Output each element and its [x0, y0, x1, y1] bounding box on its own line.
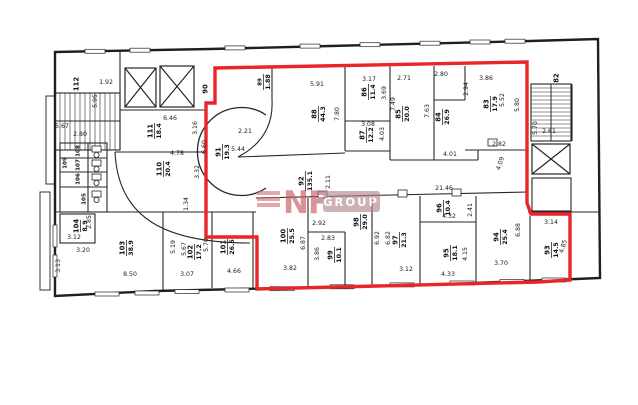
dimension-label: 5.44 [231, 146, 245, 153]
svg-text:96: 96 [436, 203, 444, 213]
svg-text:104: 104 [73, 219, 81, 233]
svg-text:25.5: 25.5 [289, 228, 296, 244]
dimension-label: 2.21 [238, 128, 252, 135]
svg-text:90: 90 [202, 84, 210, 94]
dimension-label: 2.82 [492, 141, 506, 148]
room-label-108: 108 [76, 145, 82, 157]
dimension-label: 2.80 [434, 71, 448, 78]
dimension-label: 6.46 [163, 115, 177, 122]
dimension-label: 2.85 [86, 215, 93, 229]
room-label-86: 8611.4 [361, 84, 378, 100]
svg-text:97: 97 [392, 235, 400, 245]
dimension-label: 2.11 [325, 175, 332, 189]
svg-text:18.4: 18.4 [156, 123, 163, 139]
room-label-109: 109 [63, 157, 69, 169]
dimension-label: 2.80 [73, 131, 87, 138]
dimension-label: 2.71 [397, 75, 411, 82]
svg-text:94: 94 [493, 232, 501, 242]
svg-text:25.4: 25.4 [502, 229, 509, 245]
svg-text:109: 109 [63, 157, 69, 169]
dimension-label: 21.46 [435, 185, 453, 192]
svg-text:20.4: 20.4 [165, 161, 172, 177]
dimension-label: 2.61 [542, 128, 556, 135]
dimension-label: 6.60 [201, 140, 208, 154]
svg-text:44.3: 44.3 [320, 106, 327, 122]
dimension-label: 3.14 [544, 219, 558, 226]
dimension-label: 5.52 [499, 93, 506, 107]
room-label-83: 8317.9 [483, 96, 500, 112]
room-label-84: 8426.9 [435, 109, 452, 125]
room-label-106: 106 [76, 173, 82, 185]
svg-text:1.88: 1.88 [265, 74, 272, 90]
svg-text:17.9: 17.9 [492, 96, 499, 112]
dimension-label: 3.82 [283, 265, 297, 272]
dimension-label: 3.32 [194, 165, 201, 179]
dimension-label: 2.41 [467, 203, 474, 217]
dimension-label: 3.08 [361, 121, 375, 128]
dimension-label: 3.86 [314, 247, 321, 261]
svg-text:112: 112 [73, 77, 81, 91]
dimension-label: 3.17 [362, 76, 376, 83]
dimension-label: 1.92 [99, 79, 113, 86]
svg-text:38.9: 38.9 [128, 240, 135, 256]
dimension-label: 3.70 [494, 260, 508, 267]
svg-text:105: 105 [82, 193, 88, 205]
svg-text:106: 106 [76, 173, 82, 185]
svg-text:91: 91 [215, 147, 223, 157]
dimension-label: 7.63 [424, 104, 431, 118]
dimension-label: 4.09 [495, 156, 506, 171]
dimension-label: 4.66 [227, 268, 241, 275]
dimension-label: 4.32 [442, 213, 456, 220]
svg-text:10.1: 10.1 [336, 247, 343, 263]
svg-text:12.2: 12.2 [368, 127, 375, 143]
watermark-group: GROUP [323, 195, 379, 209]
svg-text:26.5: 26.5 [229, 239, 236, 255]
dimension-label: 3.20 [76, 247, 90, 254]
dimension-label: 5.70 [203, 238, 210, 252]
dimension-label: 5.19 [170, 240, 177, 254]
svg-text:26.9: 26.9 [444, 109, 451, 125]
dimension-label: 5.70 [532, 121, 539, 135]
dimension-label: 2.94 [463, 82, 470, 96]
svg-text:107: 107 [76, 159, 82, 171]
svg-text:20.0: 20.0 [404, 106, 411, 122]
room-label-90: 90 [202, 84, 210, 94]
svg-text:110: 110 [156, 162, 164, 176]
room-label-82: 82 [553, 73, 561, 83]
room-label-93: 9314.5 [544, 242, 561, 258]
room-label-112: 112 [73, 77, 81, 91]
floor-plan-svg: NF GROUP 11211118.411020.410910810710610… [0, 0, 638, 405]
dimension-label: 3.12 [67, 234, 81, 241]
svg-text:88: 88 [311, 109, 319, 119]
svg-text:84: 84 [435, 112, 443, 122]
svg-text:82: 82 [553, 73, 561, 83]
dimension-label: 6.82 [385, 231, 392, 245]
room-label-89: 891.88 [258, 74, 273, 90]
dimension-label: 4.33 [441, 271, 455, 278]
room-label-88: 8844.3 [311, 106, 328, 122]
room-label-111: 11118.4 [147, 123, 164, 139]
watermark-stripes-icon [257, 191, 280, 207]
svg-text:93: 93 [544, 245, 552, 255]
svg-text:11.4: 11.4 [370, 84, 377, 100]
svg-text:89: 89 [258, 78, 264, 86]
room-label-102: 10217.2 [187, 244, 204, 260]
floor-plan-page: NF GROUP 11211118.411020.410910810710610… [0, 0, 638, 405]
dimension-label: 6.92 [374, 231, 381, 245]
room-label-94: 9425.4 [493, 229, 510, 245]
room-label-101: 10126.5 [220, 239, 237, 255]
svg-text:111: 111 [147, 124, 155, 138]
svg-text:135.1: 135.1 [307, 171, 314, 191]
dimension-label: 4.01 [443, 151, 457, 158]
dimension-label: 3.69 [381, 86, 388, 100]
plan-labels: 11211118.411020.41091081071061051048.910… [55, 71, 569, 278]
dimension-label: 2.92 [312, 220, 326, 227]
dimension-label: 7.49 [390, 97, 397, 111]
dimension-label: 3.07 [180, 271, 194, 278]
svg-text:17.2: 17.2 [196, 244, 203, 260]
dimension-label: 6.88 [515, 223, 522, 237]
dimension-label: 4.85 [558, 239, 569, 254]
room-label-97: 9721.3 [392, 232, 409, 248]
room-label-110: 11020.4 [156, 161, 173, 177]
svg-text:92: 92 [298, 176, 306, 186]
room-label-91: 9119.3 [215, 144, 232, 160]
dimension-label: 3.16 [192, 121, 199, 135]
room-label-107: 107 [76, 159, 82, 171]
svg-text:18.1: 18.1 [452, 245, 459, 261]
svg-text:86: 86 [361, 87, 369, 97]
svg-text:101: 101 [220, 240, 228, 254]
room-label-98: 9829.0 [353, 214, 370, 230]
svg-text:103: 103 [119, 241, 127, 255]
svg-text:21.3: 21.3 [401, 232, 408, 248]
dimension-label: 7.80 [334, 107, 341, 121]
room-label-105: 105 [82, 193, 88, 205]
dimension-label: 4.03 [379, 127, 386, 141]
staircase-left [55, 93, 120, 150]
room-label-95: 9518.1 [443, 245, 460, 261]
dimension-label: 5.67 [181, 242, 188, 256]
dimension-label: 5.80 [514, 98, 521, 112]
dimension-label: 4.78 [170, 150, 184, 157]
svg-text:98: 98 [353, 217, 361, 227]
svg-text:95: 95 [443, 248, 451, 258]
dimension-label: 5.95 [92, 94, 99, 108]
svg-text:19.3: 19.3 [224, 144, 231, 160]
svg-text:87: 87 [359, 130, 367, 140]
svg-text:83: 83 [483, 99, 491, 109]
svg-text:108: 108 [76, 145, 82, 157]
svg-text:99: 99 [327, 250, 335, 260]
room-label-87: 8712.2 [359, 127, 376, 143]
dimension-label: 3.86 [479, 75, 493, 82]
dimension-label: 3.13 [55, 259, 62, 273]
highlight-boundary [206, 62, 570, 289]
dimension-label: 2.83 [321, 235, 335, 242]
room-label-100: 10025.5 [280, 228, 297, 244]
dimension-label: 8.50 [123, 271, 137, 278]
svg-text:29.0: 29.0 [362, 214, 369, 230]
dimension-label: 3.12 [399, 266, 413, 273]
toilet-fixtures [92, 146, 101, 203]
room-label-103: 10338.9 [119, 240, 136, 256]
dimension-label: 5.91 [310, 81, 324, 88]
dimension-label: 1.34 [183, 197, 190, 211]
dimension-label: 4.15 [462, 247, 469, 261]
dimension-label: 5.67 [55, 123, 69, 130]
dimension-label: 6.87 [300, 236, 307, 250]
svg-text:100: 100 [280, 229, 288, 243]
room-label-99: 9910.1 [327, 247, 344, 263]
